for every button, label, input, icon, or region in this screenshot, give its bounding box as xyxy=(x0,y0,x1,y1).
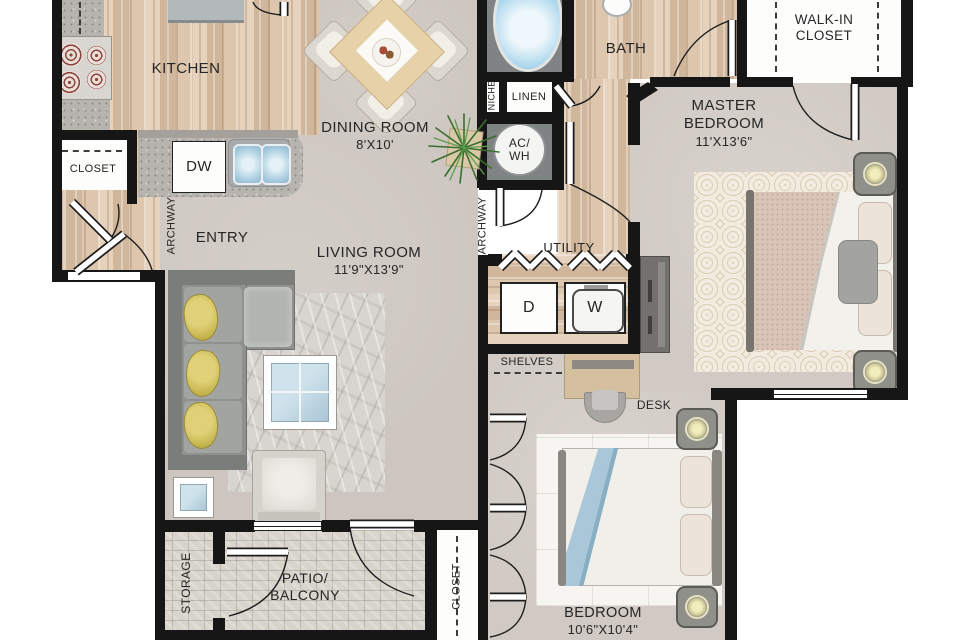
end-table-glass xyxy=(180,484,207,511)
living-dims-label: 11'9"X13'9" xyxy=(299,262,439,277)
washer-box: W xyxy=(564,282,626,334)
archway-right-label: ARCHWAY xyxy=(477,185,490,265)
dining-dims-label: 8'X10' xyxy=(305,137,445,152)
kitchen-label: KITCHEN xyxy=(136,60,236,78)
master-lamp xyxy=(863,360,887,384)
entry-label: ENTRY xyxy=(182,229,262,247)
wall xyxy=(488,254,502,266)
bedroom-dims-label: 10'6"X10'4" xyxy=(553,622,653,637)
sofa-back-left xyxy=(168,270,182,470)
washer-lid xyxy=(584,285,608,289)
refrigerator xyxy=(168,0,244,23)
wall xyxy=(650,77,730,87)
dining-room-label: DINING ROOM xyxy=(305,119,445,137)
wall xyxy=(478,344,640,354)
niche-label: NICHE xyxy=(487,75,498,115)
shelves-line xyxy=(494,372,562,374)
wall xyxy=(897,83,908,400)
wall xyxy=(737,77,793,87)
bathtub xyxy=(493,0,563,72)
ac-water-heater: AC/ WH xyxy=(493,123,546,176)
wall xyxy=(552,72,564,190)
wall xyxy=(425,520,437,640)
acwh-label: AC/ WH xyxy=(505,137,535,162)
living-sliding-window xyxy=(253,521,322,531)
bedroom-footboard xyxy=(558,450,566,586)
bedroom-lamp xyxy=(685,595,709,619)
coffee-table-divider xyxy=(299,363,301,422)
counter-edge xyxy=(138,130,298,138)
wall xyxy=(52,130,137,140)
patio-closet-label: CLOSET xyxy=(451,556,464,616)
sink-basin xyxy=(233,144,263,185)
wall xyxy=(562,0,574,82)
bedroom-lamp xyxy=(685,417,709,441)
sofa-armrest xyxy=(168,455,247,470)
master-lamp xyxy=(863,162,887,186)
archway-left-label: ARCHWAY xyxy=(166,185,179,265)
walkin-closet-label: WALK-IN CLOSET xyxy=(779,12,869,44)
bedroom-headboard xyxy=(712,450,722,586)
dinner-plate xyxy=(372,38,401,67)
sink-basin xyxy=(261,144,291,185)
master-dresser xyxy=(640,256,670,353)
dryer-label: D xyxy=(523,299,535,318)
wall xyxy=(213,618,225,640)
closet-rod-line xyxy=(775,2,777,72)
master-dims-label: 11'X13'6" xyxy=(669,134,779,149)
master-dresser-handle xyxy=(648,280,652,302)
wall xyxy=(155,270,165,640)
dishwasher-box: DW xyxy=(172,141,226,193)
patio-label: PATIO/ BALCONY xyxy=(260,570,350,603)
master-footboard xyxy=(746,190,754,352)
wall xyxy=(213,530,225,564)
master-dresser-front xyxy=(658,262,665,347)
dishwasher-label: DW xyxy=(186,158,212,176)
bath-label: BATH xyxy=(591,40,661,58)
wall xyxy=(628,222,640,354)
utility-label: UTILITY xyxy=(529,240,609,255)
desk-monitor xyxy=(572,360,634,369)
entry-closet-label: CLOSET xyxy=(58,163,128,176)
storage-label: STORAGE xyxy=(179,543,193,623)
wall xyxy=(155,630,437,640)
sofa-chaise-cushion xyxy=(244,287,292,347)
shelves-label: SHELVES xyxy=(492,356,562,369)
stove-burner xyxy=(87,46,106,65)
wall xyxy=(725,388,737,640)
bedroom-pillow xyxy=(680,456,712,508)
bedroom-pillow xyxy=(680,514,712,576)
wall xyxy=(628,83,640,145)
master-dresser-handle xyxy=(648,316,652,334)
washer-label: W xyxy=(587,299,603,318)
stove-burner xyxy=(59,43,83,67)
wall xyxy=(52,0,62,282)
linen-label: LINEN xyxy=(504,91,554,104)
wall xyxy=(901,0,913,86)
master-blanket-roll xyxy=(838,240,878,304)
armchair-cushion xyxy=(262,458,316,510)
master-window xyxy=(773,389,868,399)
wall xyxy=(478,255,488,640)
wall xyxy=(737,0,747,86)
stove-burner xyxy=(87,70,106,89)
tub-room-floor xyxy=(487,0,564,76)
entry-closet-shelf xyxy=(62,150,122,152)
wall xyxy=(322,520,350,532)
entry-door-threshold xyxy=(68,272,140,280)
living-room-label: LIVING ROOM xyxy=(299,244,439,262)
sofa-back-top xyxy=(168,270,295,285)
counter-dashed-line-top xyxy=(79,2,81,34)
closet-rod-line xyxy=(877,2,879,72)
desk-chair-seat xyxy=(592,390,618,410)
wall xyxy=(127,130,137,204)
desk-label: DESK xyxy=(632,398,676,412)
floor-plan: DW AC/ WH D W xyxy=(0,0,960,640)
wall xyxy=(477,0,487,188)
master-bedroom-label: MASTER BEDROOM xyxy=(669,97,779,132)
dryer-box: D xyxy=(500,282,558,334)
wall xyxy=(157,520,255,532)
bedroom-label: BEDROOM xyxy=(553,605,653,622)
